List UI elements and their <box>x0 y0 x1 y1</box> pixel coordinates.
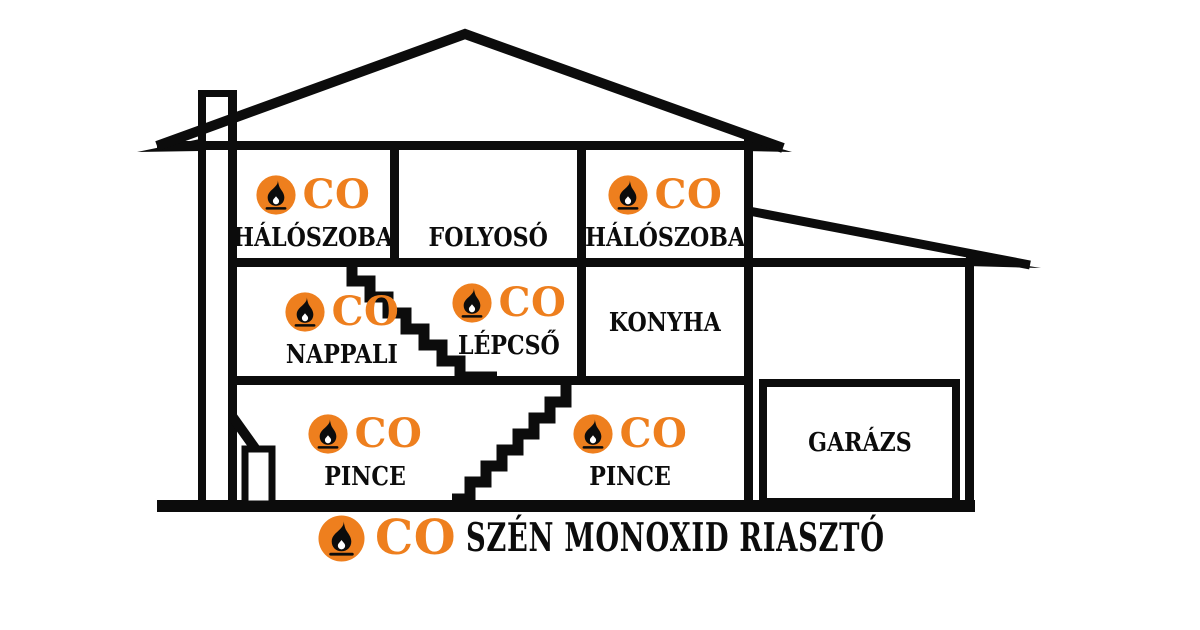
co-alarm: CO <box>308 414 423 454</box>
room-label: PINCE <box>589 462 671 493</box>
room-label: HÁLÓSZOBA <box>585 223 745 254</box>
room-label: HÁLÓSZOBA <box>233 223 393 254</box>
staircase-basement <box>452 383 566 499</box>
co-text: CO <box>499 283 567 323</box>
room-label: NAPPALI <box>286 340 398 371</box>
co-alarm: CO <box>452 283 567 323</box>
co-flame-icon <box>318 515 365 562</box>
room-label: KONYHA <box>609 308 721 339</box>
co-flame-icon <box>256 175 296 215</box>
room-label: LÉPCSŐ <box>458 331 560 362</box>
room-label: FOLYOSÓ <box>428 223 547 254</box>
room-bedroom-left: CO HÁLÓSZOBA <box>236 152 390 260</box>
co-alarm: CO <box>608 175 723 215</box>
legend-title: SZÉN MONOXID RIASZTÓ <box>466 519 885 558</box>
co-flame-icon <box>452 283 492 323</box>
co-alarm: CO <box>285 292 400 332</box>
main-roof <box>157 34 783 148</box>
co-flame-icon <box>308 414 348 454</box>
room-basement-left: CO PINCE <box>265 387 465 499</box>
co-text: CO <box>303 175 371 215</box>
room-stairs: CO LÉPCSŐ <box>442 269 576 377</box>
room-label: GARÁZS <box>808 428 912 459</box>
co-alarm-diagram: CO HÁLÓSZOBA FOLYOSÓ CO HÁLÓSZOBA CO NAP… <box>0 0 1200 630</box>
garage-roof-base <box>753 258 973 267</box>
eave-ceiling-line <box>157 141 753 150</box>
chimney-cap <box>198 90 237 97</box>
co-text: CO <box>355 414 423 454</box>
room-label: PINCE <box>324 462 406 493</box>
co-flame-icon <box>573 414 613 454</box>
co-flame-icon <box>608 175 648 215</box>
room-living: CO NAPPALI <box>238 269 446 377</box>
co-text: CO <box>655 175 723 215</box>
co-alarm: CO <box>573 414 688 454</box>
room-bedroom-right: CO HÁLÓSZOBA <box>586 152 744 260</box>
wall-hallway-bedroom <box>577 150 586 383</box>
room-kitchen: KONYHA <box>586 269 743 377</box>
garage-roof-slope <box>749 211 1030 265</box>
room-garage: GARÁZS <box>763 385 956 500</box>
room-hallway: FOLYOSÓ <box>399 152 577 260</box>
chimney-left-wall <box>198 90 206 506</box>
legend-co-text: CO <box>375 514 456 562</box>
legend: CO SZÉN MONOXID RIASZTÓ <box>318 514 1064 562</box>
room-basement-right: CO PINCE <box>550 387 710 499</box>
co-text: CO <box>620 414 688 454</box>
house-right-wall <box>744 142 753 506</box>
garage-right-wall <box>965 261 974 512</box>
co-flame-icon <box>285 292 325 332</box>
co-alarm: CO <box>256 175 371 215</box>
co-text: CO <box>332 292 400 332</box>
